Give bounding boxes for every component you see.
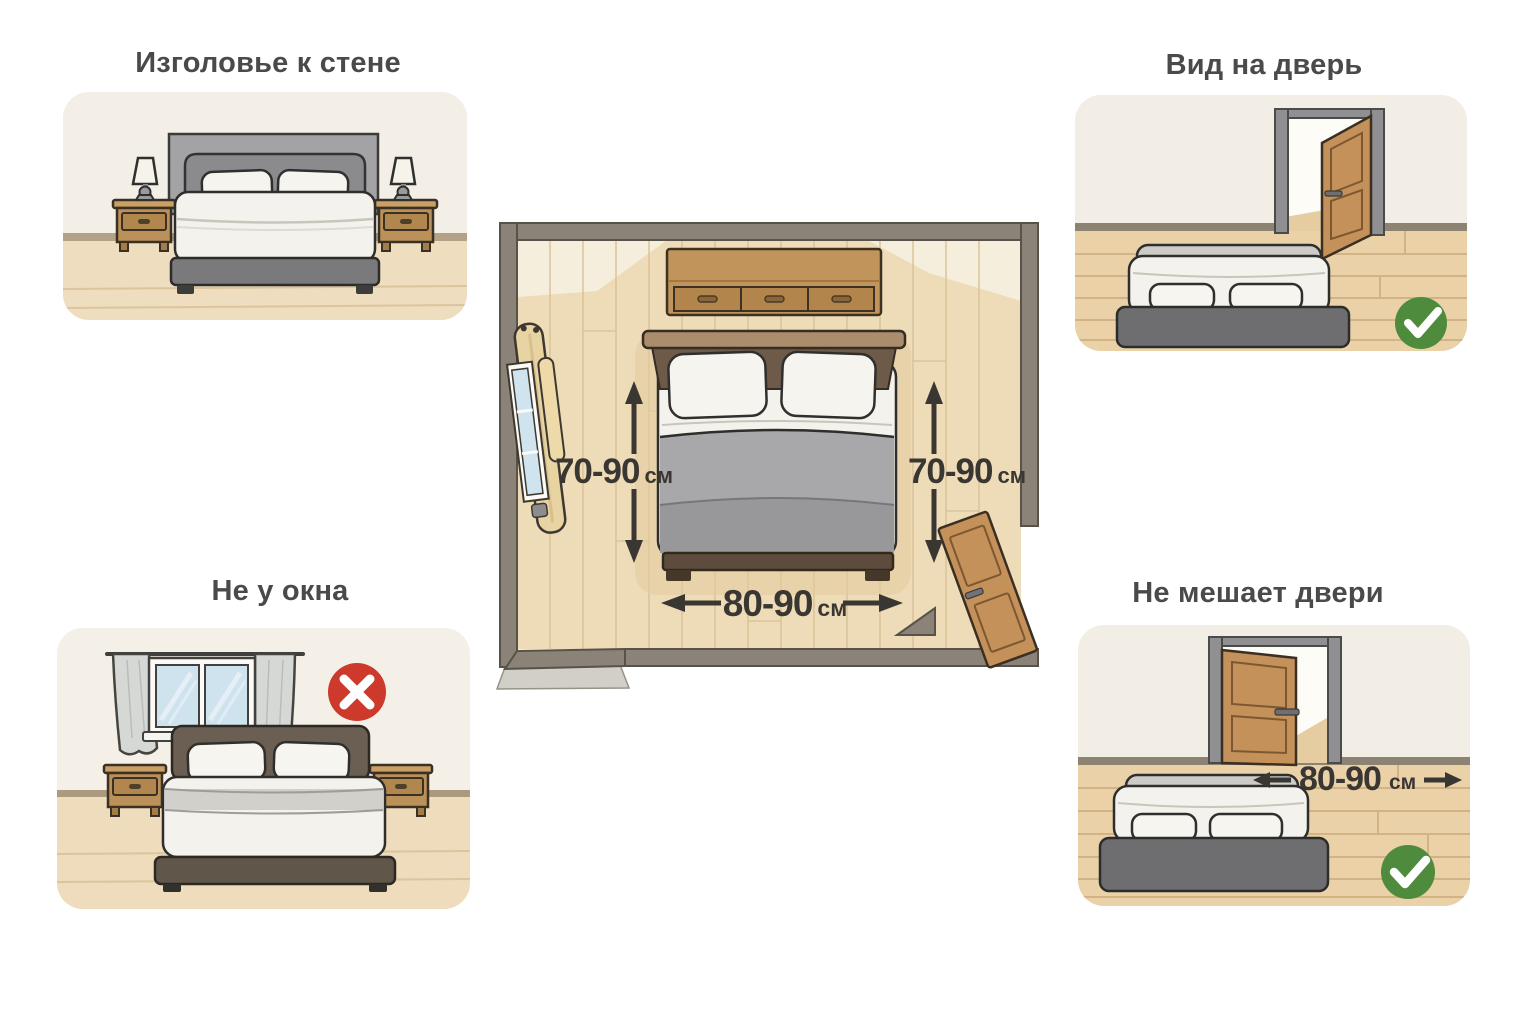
panel-title-not-blocking-door: Не мешает двери: [1060, 576, 1456, 610]
arrow-left-icon: [1253, 770, 1291, 790]
right-clearance-unit: см: [998, 463, 1027, 489]
panel-title-headboard-to-wall: Изголовье к стене: [66, 46, 470, 80]
left-clearance-unit: см: [645, 463, 674, 489]
bed: [155, 726, 395, 892]
right-clearance-label: 70-90 см: [902, 452, 1032, 492]
foot-clearance-value: 80-90: [723, 583, 813, 625]
panel-headboard-to-wall: [63, 92, 467, 320]
right-clearance-value: 70-90: [908, 452, 993, 492]
cross-icon: [328, 663, 386, 721]
panel-title-not-by-window: Не у окна: [78, 574, 482, 608]
dresser: [667, 249, 881, 315]
door: [1209, 637, 1341, 765]
panel-title-view-of-door: Вид на дверь: [1066, 48, 1462, 82]
bed-top-view: [643, 331, 905, 581]
left-clearance-value: 70-90: [555, 452, 640, 492]
bed-window-illustration: [57, 628, 470, 909]
panel-view-of-door: [1075, 95, 1467, 351]
door-clearance-label: 80-90 см: [1253, 760, 1462, 799]
left-clearance-label: 70-90 см: [549, 452, 679, 492]
bed-door-view-illustration: [1075, 95, 1467, 351]
infographic-canvas: Изголовье к стене Вид на дверь Не у окна…: [0, 0, 1536, 1024]
check-icon: [1381, 845, 1435, 899]
foot-clearance-unit: см: [817, 595, 847, 622]
door-clearance-unit: см: [1389, 771, 1416, 799]
foot-clearance-label: 80-90 см: [700, 583, 870, 625]
panel-not-by-window: [57, 628, 470, 909]
check-icon: [1395, 297, 1447, 349]
bed-front-illustration: [63, 92, 467, 320]
bed: [1117, 245, 1349, 347]
arrow-right-icon: [1424, 770, 1462, 790]
door-clearance-value: 80-90: [1299, 760, 1381, 799]
